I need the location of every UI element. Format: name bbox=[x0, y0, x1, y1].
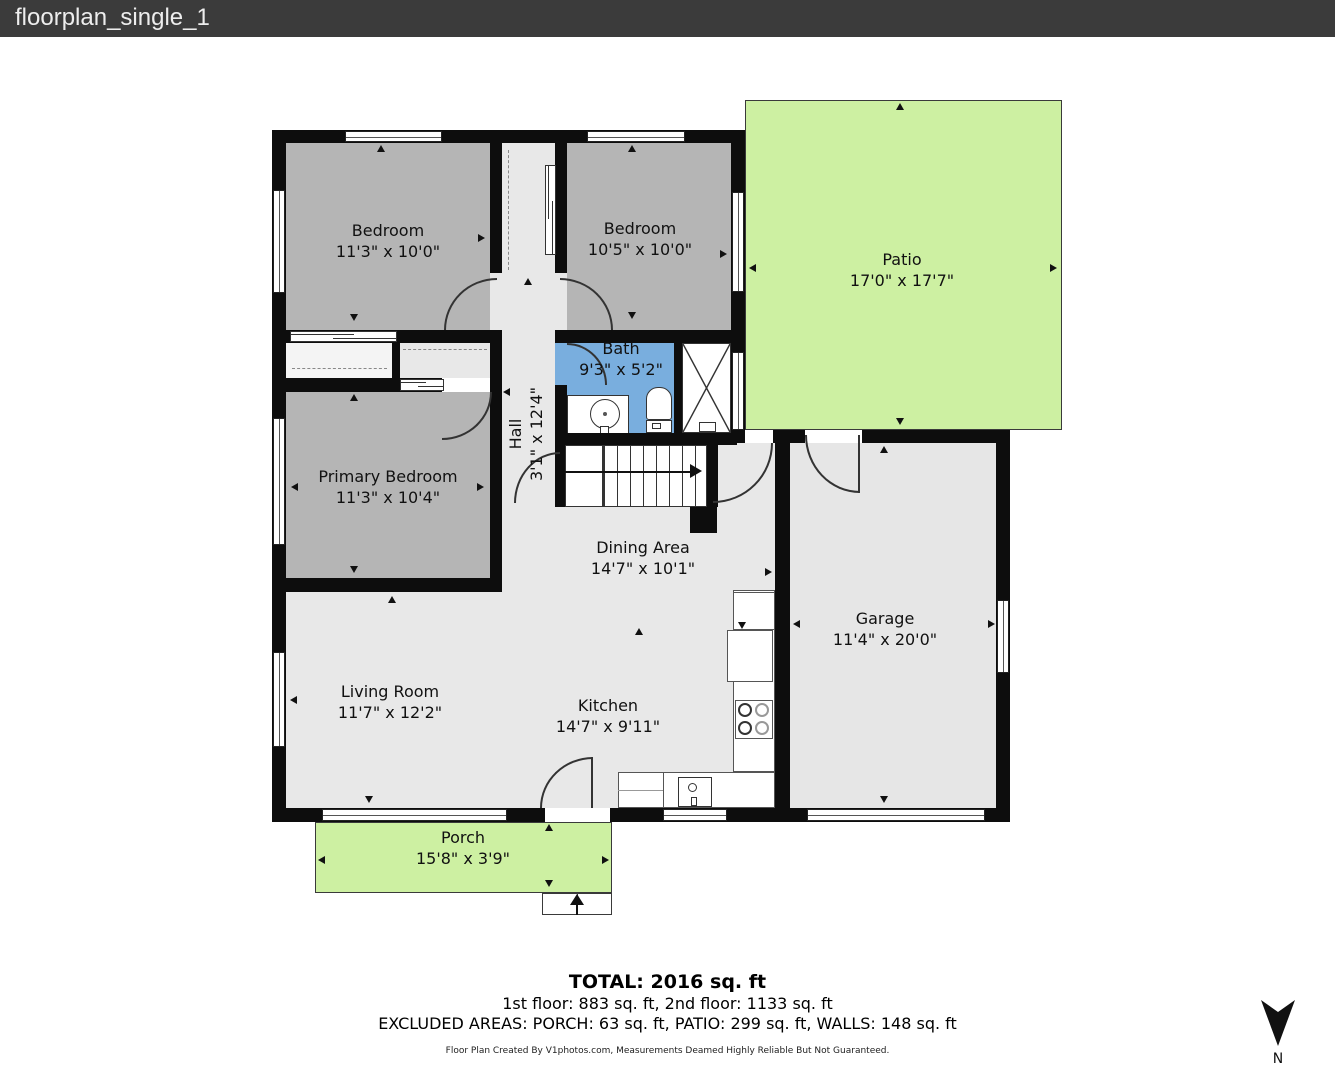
room-dims: 11'7" x 12'2" bbox=[338, 702, 442, 723]
window-titlebar: floorplan_single_1 bbox=[0, 0, 1335, 37]
bath-sink-drain-icon bbox=[603, 412, 607, 416]
excluded-areas: EXCLUDED AREAS: PORCH: 63 sq. ft, PATIO:… bbox=[0, 1014, 1335, 1034]
dimension-marker bbox=[291, 483, 298, 491]
closet-left-floor bbox=[286, 337, 392, 378]
compass-north: N bbox=[1256, 1000, 1300, 1067]
dimension-marker bbox=[365, 796, 373, 803]
room-dims: 9'3" x 5'2" bbox=[579, 359, 663, 380]
floorplan-viewer: floorplan_single_1 bbox=[0, 0, 1335, 1080]
room-dims: 15'8" x 3'9" bbox=[416, 848, 510, 869]
closet-rail bbox=[403, 349, 487, 350]
dimension-marker bbox=[377, 145, 385, 152]
dimension-marker bbox=[720, 250, 727, 258]
room-label-porch: Porch 15'8" x 3'9" bbox=[416, 827, 510, 869]
kitchen-appliance bbox=[727, 630, 773, 682]
room-name: Dining Area bbox=[591, 537, 695, 558]
shower-drain-icon bbox=[699, 422, 716, 432]
area-summary: TOTAL: 2016 sq. ft 1st floor: 883 sq. ft… bbox=[0, 971, 1335, 1034]
sliding-closet-door bbox=[290, 331, 397, 342]
total-area: TOTAL: 2016 sq. ft bbox=[0, 971, 1335, 994]
dimension-marker bbox=[602, 856, 609, 864]
room-name: Bath bbox=[579, 338, 663, 359]
room-dims: 10'5" x 10'0" bbox=[588, 239, 692, 260]
dimension-marker bbox=[350, 314, 358, 321]
room-name: Bedroom bbox=[336, 220, 440, 241]
counter-divider bbox=[618, 790, 663, 791]
room-label-dining-area: Dining Area 14'7" x 10'1" bbox=[591, 537, 695, 579]
dimension-marker bbox=[749, 264, 756, 272]
wall bbox=[490, 330, 502, 592]
burner-icon bbox=[738, 721, 752, 735]
dimension-marker bbox=[524, 278, 532, 285]
room-label-garage: Garage 11'4" x 20'0" bbox=[833, 608, 937, 650]
burner-icon bbox=[738, 703, 752, 717]
wall bbox=[555, 143, 567, 273]
counter-divider bbox=[663, 772, 664, 808]
dimension-marker bbox=[628, 145, 636, 152]
room-label-kitchen: Kitchen 14'7" x 9'11" bbox=[556, 695, 660, 737]
room-label-bedroom-2: Bedroom 10'5" x 10'0" bbox=[588, 218, 692, 260]
window bbox=[587, 131, 685, 142]
credit-line: Floor Plan Created By V1photos.com, Meas… bbox=[0, 1046, 1335, 1056]
window bbox=[273, 418, 285, 545]
room-name: Living Room bbox=[338, 681, 442, 702]
room-dims: 11'3" x 10'4" bbox=[318, 487, 457, 508]
shower-stall bbox=[682, 343, 731, 433]
dimension-marker bbox=[350, 394, 358, 401]
dimension-marker bbox=[350, 566, 358, 573]
dimension-marker bbox=[880, 446, 888, 453]
closet-rail bbox=[508, 150, 509, 270]
room-dims: 11'4" x 20'0" bbox=[833, 629, 937, 650]
dimension-marker bbox=[988, 620, 995, 628]
door-opening bbox=[442, 378, 492, 392]
wall bbox=[555, 330, 567, 343]
dimension-marker bbox=[290, 696, 297, 704]
dimension-marker bbox=[545, 824, 553, 831]
closet-rail bbox=[292, 368, 387, 369]
dimension-marker bbox=[628, 312, 636, 319]
room-label-living-room: Living Room 11'7" x 12'2" bbox=[338, 681, 442, 723]
wall bbox=[862, 430, 1010, 443]
room-name: Porch bbox=[416, 827, 510, 848]
window bbox=[663, 809, 727, 821]
room-name: Bedroom bbox=[588, 218, 692, 239]
kitchen-faucet-icon bbox=[691, 797, 697, 806]
burner-icon bbox=[755, 703, 769, 717]
dimension-marker bbox=[388, 596, 396, 603]
dimension-marker bbox=[478, 234, 485, 242]
room-label-hall: Hall 3'1" x 12'4" bbox=[505, 387, 547, 481]
wall bbox=[674, 343, 682, 433]
wall bbox=[773, 430, 805, 443]
closet-right-floor bbox=[400, 337, 490, 378]
room-dims: 14'7" x 9'11" bbox=[556, 716, 660, 737]
room-label-primary-bedroom: Primary Bedroom 11'3" x 10'4" bbox=[318, 466, 457, 508]
garage-door bbox=[807, 809, 985, 821]
entry-arrow-stem bbox=[576, 904, 578, 915]
window bbox=[732, 192, 744, 292]
toilet-flush-icon bbox=[652, 423, 661, 429]
room-name: Kitchen bbox=[556, 695, 660, 716]
window bbox=[273, 190, 285, 293]
sliding-closet-door bbox=[400, 379, 444, 391]
wall bbox=[775, 443, 790, 808]
room-label-patio: Patio 17'0" x 17'7" bbox=[850, 249, 954, 291]
stair-closet bbox=[565, 445, 603, 507]
compass-label: N bbox=[1256, 1051, 1300, 1067]
chimney bbox=[690, 507, 717, 533]
dimension-marker bbox=[896, 418, 904, 425]
room-name: Hall bbox=[505, 387, 526, 481]
dimension-marker bbox=[765, 568, 772, 576]
door-leaf bbox=[591, 757, 593, 808]
window bbox=[273, 652, 285, 747]
window bbox=[322, 809, 507, 821]
room-name: Patio bbox=[850, 249, 954, 270]
stair-direction-arrow-icon bbox=[690, 464, 702, 478]
kitchen-sink-drain-icon bbox=[688, 783, 697, 792]
sliding-closet-door bbox=[545, 165, 556, 255]
floor-areas: 1st floor: 883 sq. ft, 2nd floor: 1133 s… bbox=[0, 994, 1335, 1014]
wall bbox=[490, 143, 502, 273]
dimension-marker bbox=[318, 856, 325, 864]
dimension-marker bbox=[635, 628, 643, 635]
dimension-marker bbox=[880, 796, 888, 803]
dimension-marker bbox=[793, 620, 800, 628]
dimension-marker bbox=[1050, 264, 1057, 272]
stair-direction-line bbox=[562, 471, 690, 473]
room-dims: 11'3" x 10'0" bbox=[336, 241, 440, 262]
room-name: Garage bbox=[833, 608, 937, 629]
room-name: Primary Bedroom bbox=[318, 466, 457, 487]
shower-x-icon bbox=[683, 344, 730, 432]
dimension-marker bbox=[477, 483, 484, 491]
window bbox=[345, 131, 442, 142]
toilet-bowl-icon bbox=[646, 387, 672, 420]
room-dims: 3'1" x 12'4" bbox=[526, 387, 547, 481]
window bbox=[997, 600, 1009, 673]
door-leaf bbox=[858, 435, 860, 493]
room-dims: 17'0" x 17'7" bbox=[850, 270, 954, 291]
room-label-bedroom-1: Bedroom 11'3" x 10'0" bbox=[336, 220, 440, 262]
window-title: floorplan_single_1 bbox=[15, 4, 210, 31]
wall bbox=[392, 337, 400, 378]
wall bbox=[272, 578, 502, 592]
room-label-bath: Bath 9'3" x 5'2" bbox=[579, 338, 663, 380]
room-dims: 14'7" x 10'1" bbox=[591, 558, 695, 579]
window bbox=[732, 352, 744, 430]
north-arrow-icon bbox=[1261, 1000, 1295, 1046]
dimension-marker bbox=[896, 103, 904, 110]
dimension-marker bbox=[738, 622, 746, 629]
dimension-marker bbox=[545, 880, 553, 887]
burner-icon bbox=[755, 721, 769, 735]
